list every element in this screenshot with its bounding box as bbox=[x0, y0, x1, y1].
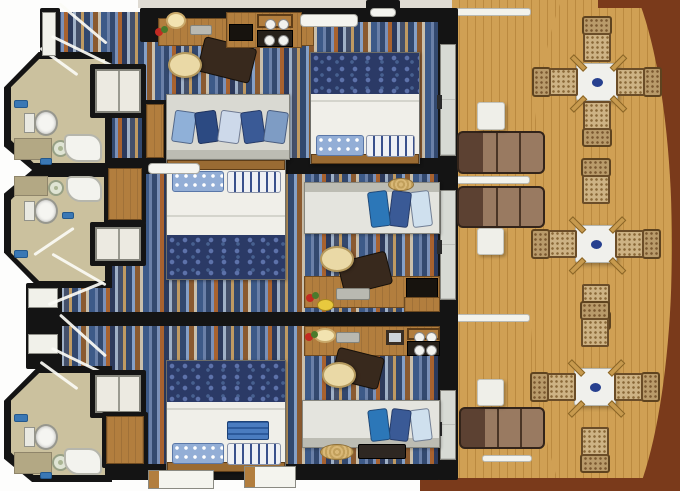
cabin3-flowers bbox=[305, 331, 316, 342]
sofa-pillow bbox=[388, 190, 412, 228]
chair-seat bbox=[548, 230, 577, 258]
balcony3-chair-north bbox=[580, 301, 610, 347]
bed-pillow-left bbox=[172, 443, 224, 464]
bed-pillow-right bbox=[227, 443, 281, 465]
balcony1-sun-lounger bbox=[457, 131, 545, 174]
chair-back bbox=[643, 67, 662, 97]
balcony1-chair-east bbox=[616, 67, 662, 97]
cabin3-balcony-door bbox=[440, 390, 456, 460]
bathroom3-towel-a bbox=[14, 414, 28, 422]
cabin1-bottle-shelf bbox=[257, 14, 293, 28]
cabin1-bed bbox=[310, 52, 420, 164]
balcony2-chair-east bbox=[615, 229, 661, 259]
bathroom3-vanity bbox=[14, 452, 52, 474]
chair-seat bbox=[583, 33, 611, 62]
sofa-pillow bbox=[367, 190, 391, 228]
flower-leaf bbox=[312, 292, 319, 299]
cabin2-sofa bbox=[304, 182, 440, 234]
cabin1-desk-lamp bbox=[166, 12, 186, 29]
chair-back bbox=[641, 372, 660, 402]
balcony1-chair-west bbox=[532, 67, 578, 97]
chair-seat bbox=[581, 427, 609, 456]
bottle bbox=[264, 35, 275, 46]
chair-seat bbox=[549, 68, 578, 96]
toilet-bowl bbox=[34, 198, 58, 224]
bed-pillow-right bbox=[366, 135, 415, 157]
chair-seat bbox=[616, 68, 645, 96]
cabin2-ac-vent bbox=[148, 163, 200, 174]
bathroom2-towel-a bbox=[14, 250, 28, 258]
cabin3-picture bbox=[386, 330, 404, 345]
cabin2-straw-hat bbox=[388, 178, 414, 191]
table-bowl bbox=[590, 383, 601, 392]
chair-back bbox=[582, 128, 612, 147]
bed-sheet-fold bbox=[311, 100, 419, 102]
sofa-pillow bbox=[367, 408, 391, 442]
bathroom2-toilet bbox=[24, 198, 58, 224]
cabin3-stool-seat bbox=[322, 362, 356, 388]
bed-pillow-left bbox=[172, 171, 224, 192]
bottom-exterior-box-a bbox=[148, 470, 214, 489]
balcony3-chair-west bbox=[530, 372, 576, 402]
rail-top-band bbox=[598, 0, 680, 8]
balcony-divider-bottom bbox=[482, 455, 532, 462]
bathroom1-toilet bbox=[24, 110, 58, 136]
bathroom1-vanity bbox=[14, 138, 52, 160]
bottle bbox=[265, 19, 276, 30]
bottle bbox=[426, 345, 437, 356]
balcony1-chair-north bbox=[582, 16, 612, 62]
cabin1-ac-vent bbox=[300, 14, 358, 27]
bottom-exterior-box-b bbox=[244, 466, 296, 488]
flower-leaf bbox=[161, 26, 168, 33]
bathroom2-vanity bbox=[14, 176, 48, 196]
balcony1-chair-south bbox=[582, 101, 612, 147]
balcony1-dining-table bbox=[576, 63, 618, 101]
chair-back bbox=[642, 229, 661, 259]
bathroom3-shower bbox=[64, 448, 102, 475]
balcony2-dining-table bbox=[575, 225, 617, 263]
balcony-divider-2 bbox=[450, 314, 530, 322]
toilet-bowl bbox=[34, 110, 58, 136]
cabin3-desk-tray bbox=[336, 332, 360, 343]
cabin2-entry-door bbox=[28, 288, 58, 308]
balcony3-chair-east bbox=[614, 372, 660, 402]
balcony3-sun-lounger bbox=[459, 407, 545, 449]
sofa-pillow bbox=[409, 190, 433, 228]
balcony3-dining-table bbox=[574, 368, 616, 406]
cabin2-closet-floor bbox=[108, 168, 142, 220]
bottle bbox=[278, 19, 289, 30]
bed-towels bbox=[227, 421, 269, 440]
cabin3-bed bbox=[166, 360, 286, 472]
cabin1-tv bbox=[229, 24, 253, 41]
top-wall-notch-vent bbox=[370, 8, 396, 17]
cabin3-floor-dark-tray bbox=[358, 444, 406, 459]
chair-seat bbox=[581, 318, 609, 347]
sofa-pillow bbox=[217, 110, 243, 145]
bathroom2-sink bbox=[48, 180, 64, 196]
sofa-back bbox=[167, 150, 289, 159]
chair-seat bbox=[547, 373, 576, 401]
toilet-bowl bbox=[34, 424, 58, 450]
bottle bbox=[414, 345, 425, 356]
cabin1-balcony-door bbox=[440, 44, 456, 156]
cabin3-wardrobe-mirror-doors bbox=[95, 375, 141, 413]
cabin2-desk-tray bbox=[336, 288, 370, 300]
cabin3-floor-tray bbox=[320, 444, 354, 460]
bathroom2-shower bbox=[66, 176, 102, 202]
cabin3-cups-tray bbox=[407, 341, 440, 356]
cabin2-balcony-door bbox=[440, 190, 456, 300]
rail-bottom-band bbox=[420, 478, 680, 491]
table-bowl bbox=[592, 78, 603, 87]
bed-duvet bbox=[167, 235, 285, 279]
table-bowl bbox=[591, 240, 602, 249]
cabin3-sofa bbox=[302, 400, 440, 448]
bed-pillow-right bbox=[227, 171, 281, 193]
cabin2-cabinet bbox=[404, 297, 440, 312]
bathroom1-shower bbox=[64, 134, 102, 162]
cabin2-fruit-bowl bbox=[317, 299, 334, 311]
cabin2-stool-seat bbox=[320, 246, 354, 272]
sofa-pillow bbox=[388, 408, 412, 442]
bathroom3-toilet bbox=[24, 424, 58, 450]
cabin1-sofa bbox=[166, 94, 290, 160]
cabin2-tv bbox=[406, 278, 438, 298]
chair-seat bbox=[615, 230, 644, 258]
cabins-floor-plan bbox=[0, 0, 680, 491]
cabin2-bed bbox=[166, 160, 286, 280]
flower-leaf bbox=[311, 331, 318, 338]
cabin3-bottle-shelf bbox=[407, 328, 440, 340]
cabin1-closet-floor bbox=[146, 104, 164, 158]
bathroom1-towel-a bbox=[14, 100, 28, 108]
bed-duvet bbox=[167, 361, 285, 402]
balcony2-side-table bbox=[477, 228, 504, 255]
chair-seat bbox=[583, 101, 611, 130]
balcony2-chair-north bbox=[581, 158, 611, 204]
cabin3-closet-floor bbox=[106, 416, 144, 464]
bed-sheet-fold bbox=[167, 215, 285, 217]
cabin2-3-divider-wall bbox=[42, 312, 440, 326]
bathroom2-towel-b bbox=[62, 212, 74, 219]
chair-seat bbox=[614, 373, 643, 401]
balcony-divider-1 bbox=[452, 176, 530, 184]
balcony2-sun-lounger bbox=[457, 186, 545, 228]
bathroom3-towel-b bbox=[40, 472, 52, 479]
sofa-pillow bbox=[263, 110, 289, 145]
balcony1-side-table bbox=[477, 102, 505, 130]
bed-pillow-left bbox=[316, 135, 364, 156]
cabin1-flowers bbox=[155, 26, 168, 38]
sofa-pillow bbox=[409, 408, 433, 442]
chair-seat bbox=[582, 175, 610, 204]
balcony2-chair-west bbox=[531, 229, 577, 259]
cabin2-wardrobe-mirror-doors bbox=[95, 227, 141, 261]
bathroom1-towel-b bbox=[40, 158, 52, 165]
chair-back bbox=[580, 454, 610, 473]
cabin1-cups-tray bbox=[257, 30, 293, 47]
cabin1-stool-seat bbox=[168, 52, 202, 78]
balcony3-chair-south bbox=[580, 427, 610, 473]
bottle bbox=[278, 35, 289, 46]
bed-sheet-fold bbox=[167, 408, 285, 410]
bed-duvet bbox=[311, 53, 419, 94]
sofa-pillow bbox=[171, 110, 197, 145]
cabin1-wardrobe-mirror-doors bbox=[95, 69, 141, 113]
cabin1-desk-tray bbox=[190, 25, 212, 35]
balcony3-side-table bbox=[477, 379, 504, 406]
cabin1-entry-door bbox=[42, 12, 56, 56]
